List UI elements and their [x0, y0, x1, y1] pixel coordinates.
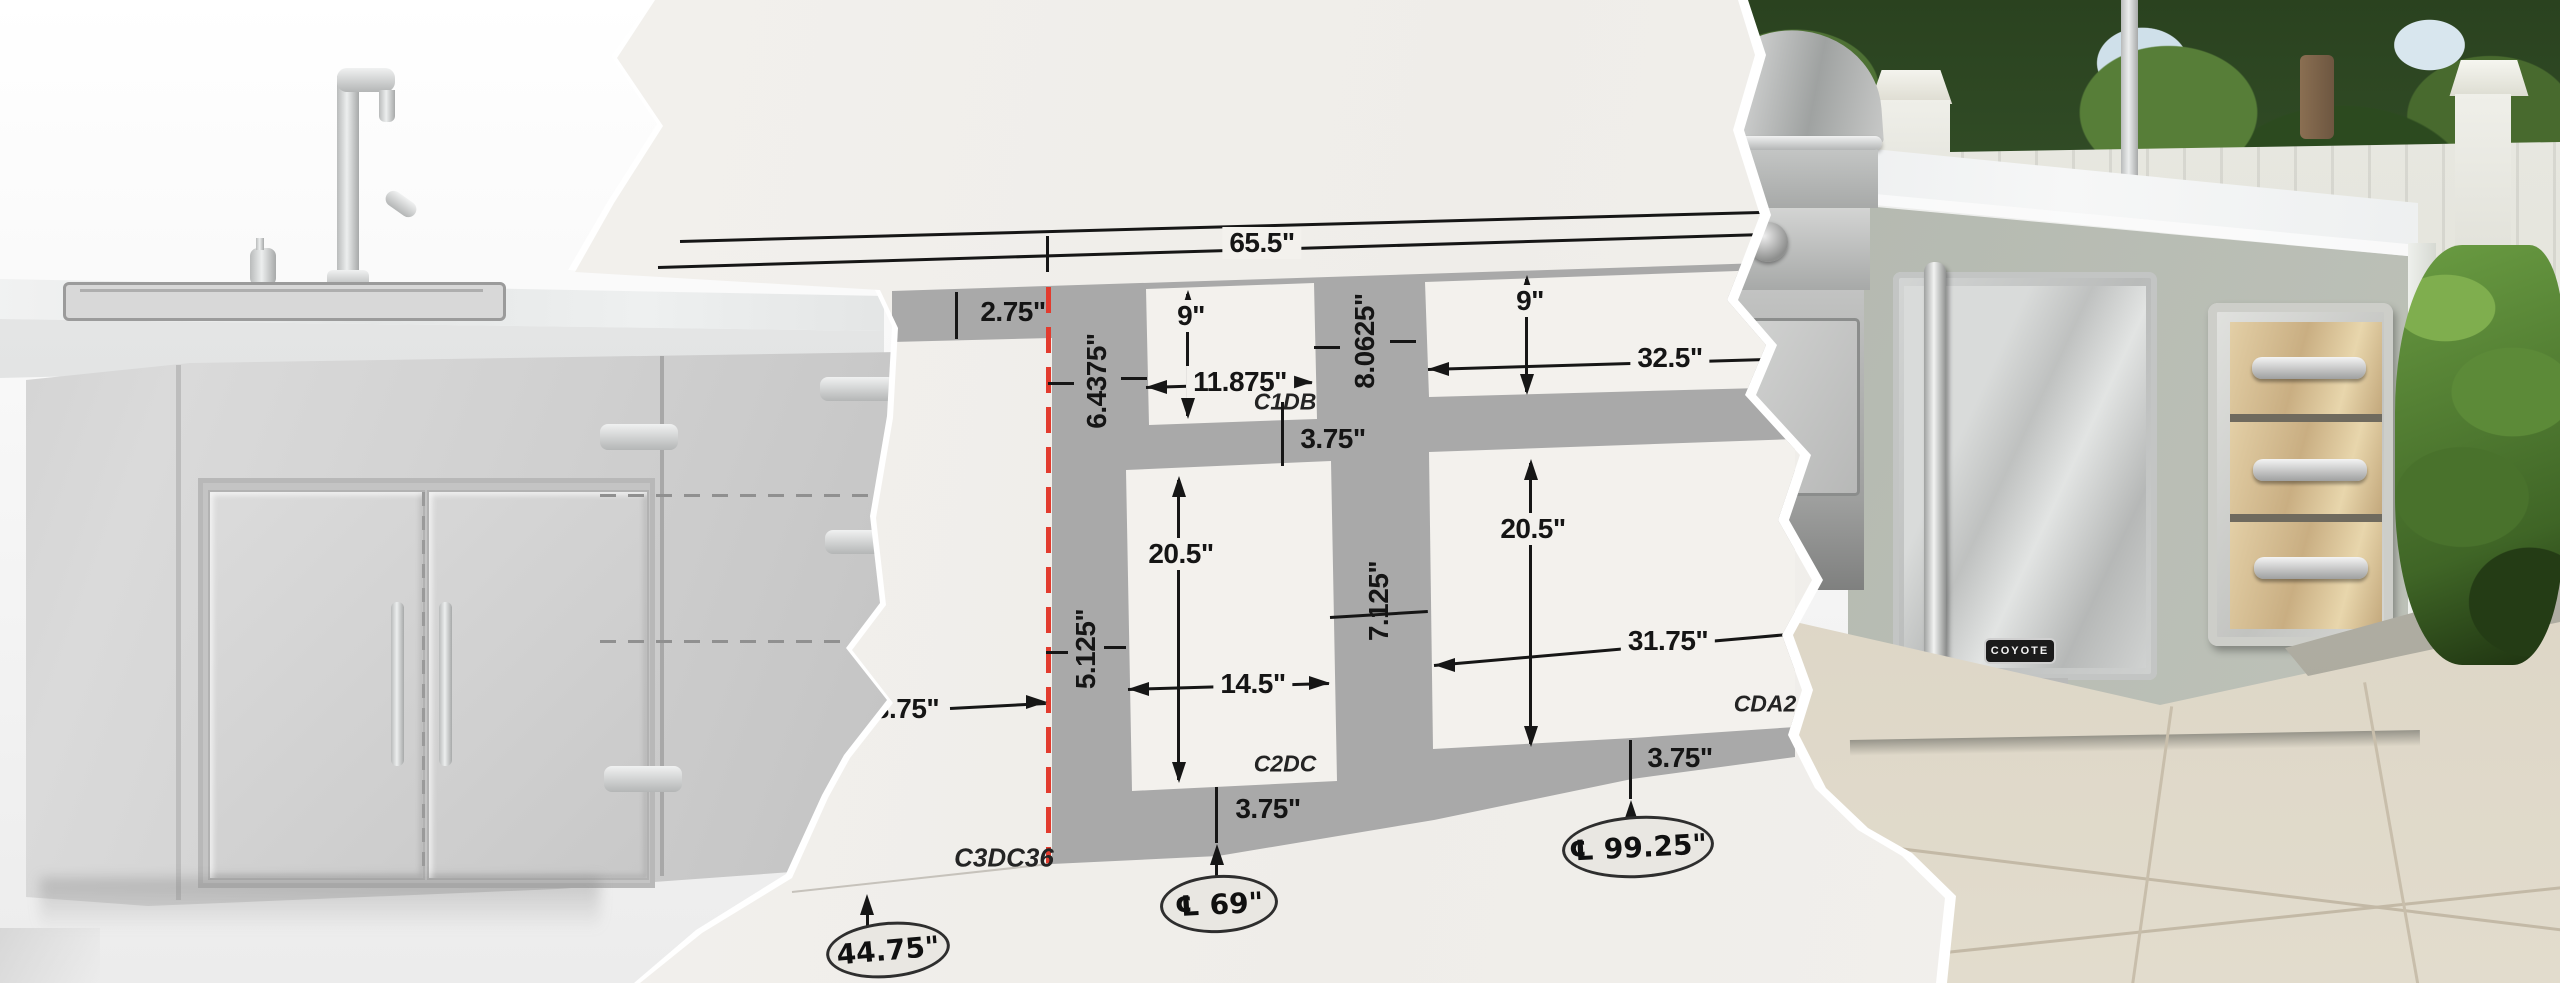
dim-tick: [1314, 346, 1340, 349]
fridge-brand-badge: COYOTE: [1986, 640, 2054, 662]
arrow-down-icon: [1181, 398, 1195, 419]
sink-inner-line: [80, 289, 483, 292]
arrow-up-icon: [1172, 476, 1186, 497]
fridge-handle: [1924, 262, 1946, 670]
tree-trunk: [2300, 55, 2334, 139]
arrow-up-icon: [860, 894, 874, 915]
label-cda2: CDA2: [1734, 691, 1797, 718]
dim-text: 7.125": [1363, 561, 1395, 641]
red-centerline: [1046, 287, 1051, 864]
bushes: [2395, 245, 2560, 665]
dim-text: 2.75": [980, 296, 1045, 328]
dim-text: 3.75": [1647, 742, 1712, 774]
arrow-right-icon: [1026, 695, 1047, 709]
arrow-down-icon: [1172, 762, 1186, 783]
badge-text: 44.75": [835, 929, 941, 971]
arrow-right-icon: [1292, 375, 1313, 389]
fence-post-right: [2455, 94, 2511, 254]
drawer-seam-2: [600, 640, 892, 643]
dim-tick: [1104, 646, 1126, 649]
badge-text: ℄ 69": [1174, 885, 1264, 923]
faucet-stem: [337, 70, 359, 286]
dim-line: [1177, 480, 1180, 780]
outdoor-kitchen-collage: COYOTE: [0, 0, 2560, 983]
dim-tick: [1121, 377, 1147, 380]
dim-text: 9": [1509, 285, 1551, 317]
dim-text: 3.75": [1300, 423, 1365, 455]
render-drawer-handle-1: [600, 424, 678, 450]
arrow-up-icon: [1524, 459, 1538, 480]
label-c2dc: C2DC: [1254, 751, 1317, 778]
dim-text: 8.0625": [1349, 293, 1381, 388]
drawer-handle-3: [2254, 557, 2368, 579]
drawer-seam-1: [600, 494, 892, 497]
door-seam: [422, 492, 425, 874]
arrow-down-icon: [1524, 726, 1538, 747]
badge-44-75: 44.75": [824, 917, 952, 983]
dim-text: 14.5": [1213, 668, 1292, 700]
badge-centerline-99-25: ℄ 99.25": [1560, 812, 1715, 882]
arrow-left-icon: [1428, 362, 1449, 376]
dim-line: [1629, 740, 1632, 799]
sink: [63, 282, 506, 321]
dim-text: 5.125": [1070, 609, 1102, 689]
door-handle-right: [439, 602, 452, 766]
floor-corner-shade: [0, 928, 100, 983]
dim-text: 31.75": [1621, 625, 1715, 657]
dim-line: [1281, 402, 1284, 466]
drawer-divider-2: [2230, 514, 2382, 522]
drawer-handle-2: [2253, 459, 2367, 481]
faucet-lever: [382, 188, 419, 221]
dim-text: 20.5": [1141, 538, 1220, 570]
faucet-spout-tip: [379, 90, 395, 122]
door-leaf-right: [427, 490, 649, 880]
render-drawer-handle-3: [820, 377, 896, 401]
badge-centerline-69: ℄ 69": [1159, 872, 1280, 936]
dim-line: [1215, 787, 1218, 843]
badge-text: ℄ 99.25": [1568, 827, 1708, 867]
dim-text: 3.75": [1235, 793, 1300, 825]
dim-tick: [1048, 382, 1074, 385]
arrow-left-icon: [1146, 380, 1167, 394]
door-handle-left: [391, 602, 404, 766]
drawer-handle-1: [2252, 357, 2366, 379]
cabinet-corner-line: [176, 365, 181, 900]
arrow-right-icon: [1309, 676, 1330, 690]
dim-tick: [1046, 651, 1068, 654]
faucet-spout: [337, 68, 395, 92]
label-c1db: C1DB: [1254, 389, 1317, 416]
dim-text: 65.5": [1222, 227, 1301, 259]
arrow-left-icon: [1128, 682, 1149, 696]
soap-dispenser: [250, 248, 276, 286]
dim-line: [1529, 463, 1532, 744]
soap-dispenser-neck: [256, 238, 264, 250]
arrow-up-icon: [1210, 844, 1224, 865]
render-drawer-handle-2: [604, 766, 682, 792]
dim-tick: [955, 292, 958, 339]
dim-text: 9": [1170, 300, 1212, 332]
cabinet-floor-shadow: [40, 878, 600, 930]
fridge-brand-text: COYOTE: [1991, 645, 2049, 657]
dim-tick: [1046, 236, 1049, 272]
dim-text: 20.5": [1493, 513, 1572, 545]
arrow-down-icon: [1520, 374, 1534, 395]
label-c3dc36: C3DC36: [954, 843, 1054, 874]
drawer-divider-1: [2230, 414, 2382, 422]
dim-tick: [1390, 340, 1416, 343]
umbrella-pole: [2121, 0, 2138, 188]
dim-text: 32.5": [1630, 342, 1709, 374]
dim-text: 6.4375": [1081, 333, 1113, 428]
arrow-left-icon: [1434, 658, 1455, 672]
